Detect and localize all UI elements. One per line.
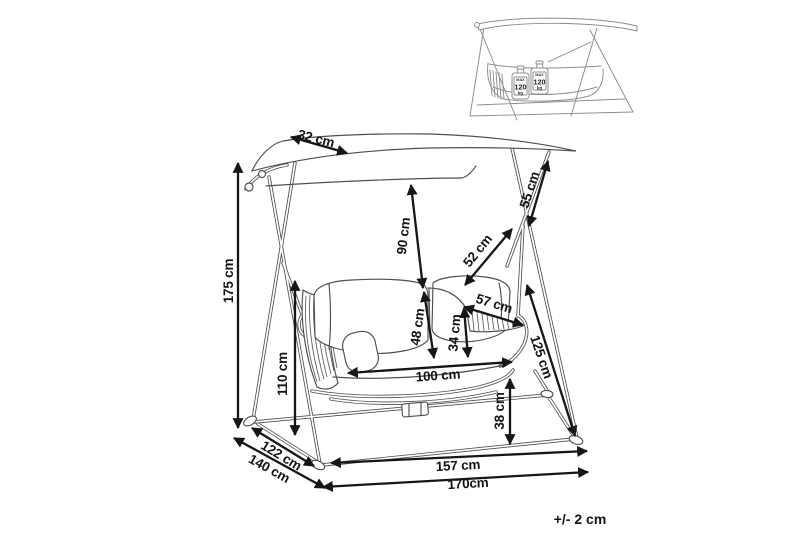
dimension-seat-width-label: 100 cm (415, 366, 461, 384)
dimension-leg-length-label: 125 cm (527, 333, 556, 380)
dimension-diagram-page: MAX 120 kg MAX 120 kg (0, 0, 800, 533)
canopy-bracket-knob (259, 171, 266, 178)
dimension-canopy-to-seat-label: 90 cm (394, 216, 413, 255)
dimension-base-width-overall: 170cm (323, 472, 588, 492)
dimension-seat-clearance: 38 cm (492, 379, 510, 444)
dimension-leg-length: 125 cm (527, 285, 575, 436)
weight-unit-label: kg (537, 86, 543, 91)
canopy-rear-hem (266, 166, 476, 186)
foot-pad (541, 390, 554, 398)
dimension-canopy-to-seat: 90 cm (394, 185, 423, 288)
dimension-pivot-height-label: 110 cm (275, 352, 290, 396)
dimension-base-width-inner: 157 cm (331, 451, 587, 474)
foot-pad (568, 434, 584, 446)
weight-jug: MAX 120 kg (531, 61, 548, 94)
dimension-seat-clearance-label: 38 cm (492, 392, 507, 429)
dimension-side-panel-height-label: 34 cm (445, 314, 463, 353)
inset-thumbnail-front-view: MAX 120 kg MAX 120 kg (470, 18, 637, 120)
dimension-base-width-overall-label: 170cm (447, 475, 489, 492)
dimension-overall-height-label: 175 cm (221, 259, 236, 304)
weight-unit-label: kg (518, 91, 524, 96)
weight-max-label: MAX (516, 78, 525, 82)
weight-max-label: MAX (535, 73, 544, 77)
dimension-hanger-length-label: 52 cm (460, 231, 495, 270)
tolerance-note: +/- 2 cm (554, 511, 607, 527)
floor-rail-clamp (402, 402, 429, 417)
foot-pad (242, 414, 258, 428)
swing-dimension-diagram: MAX 120 kg MAX 120 kg (0, 0, 800, 533)
canopy-bracket-knob (245, 183, 253, 191)
weight-jug: MAX 120 kg (512, 66, 529, 99)
dimension-overall-height: 175 cm (221, 163, 238, 428)
dimension-base-width-inner-label: 157 cm (435, 457, 481, 474)
inset-canopy-knob (475, 23, 480, 28)
